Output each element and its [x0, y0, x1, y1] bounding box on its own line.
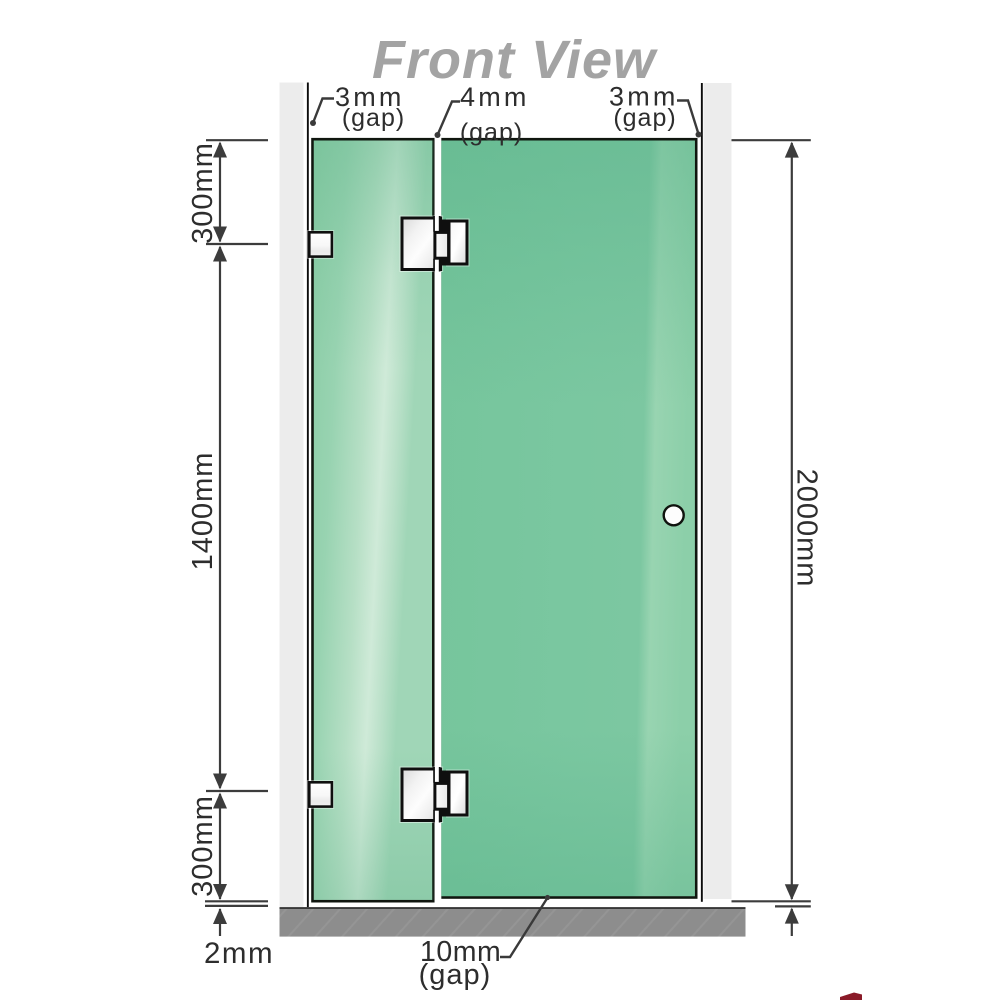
- svg-text:(gap): (gap): [342, 104, 405, 132]
- svg-text:(gap): (gap): [419, 959, 492, 991]
- svg-text:300mm: 300mm: [187, 795, 219, 897]
- svg-text:(gap): (gap): [460, 119, 523, 147]
- svg-text:300mm: 300mm: [187, 142, 219, 244]
- svg-text:2000mm: 2000mm: [791, 469, 823, 588]
- svg-text:2mm: 2mm: [204, 937, 274, 970]
- svg-text:(gap): (gap): [613, 104, 676, 132]
- svg-text:1400mm: 1400mm: [187, 452, 219, 571]
- svg-text:Front View: Front View: [372, 30, 658, 90]
